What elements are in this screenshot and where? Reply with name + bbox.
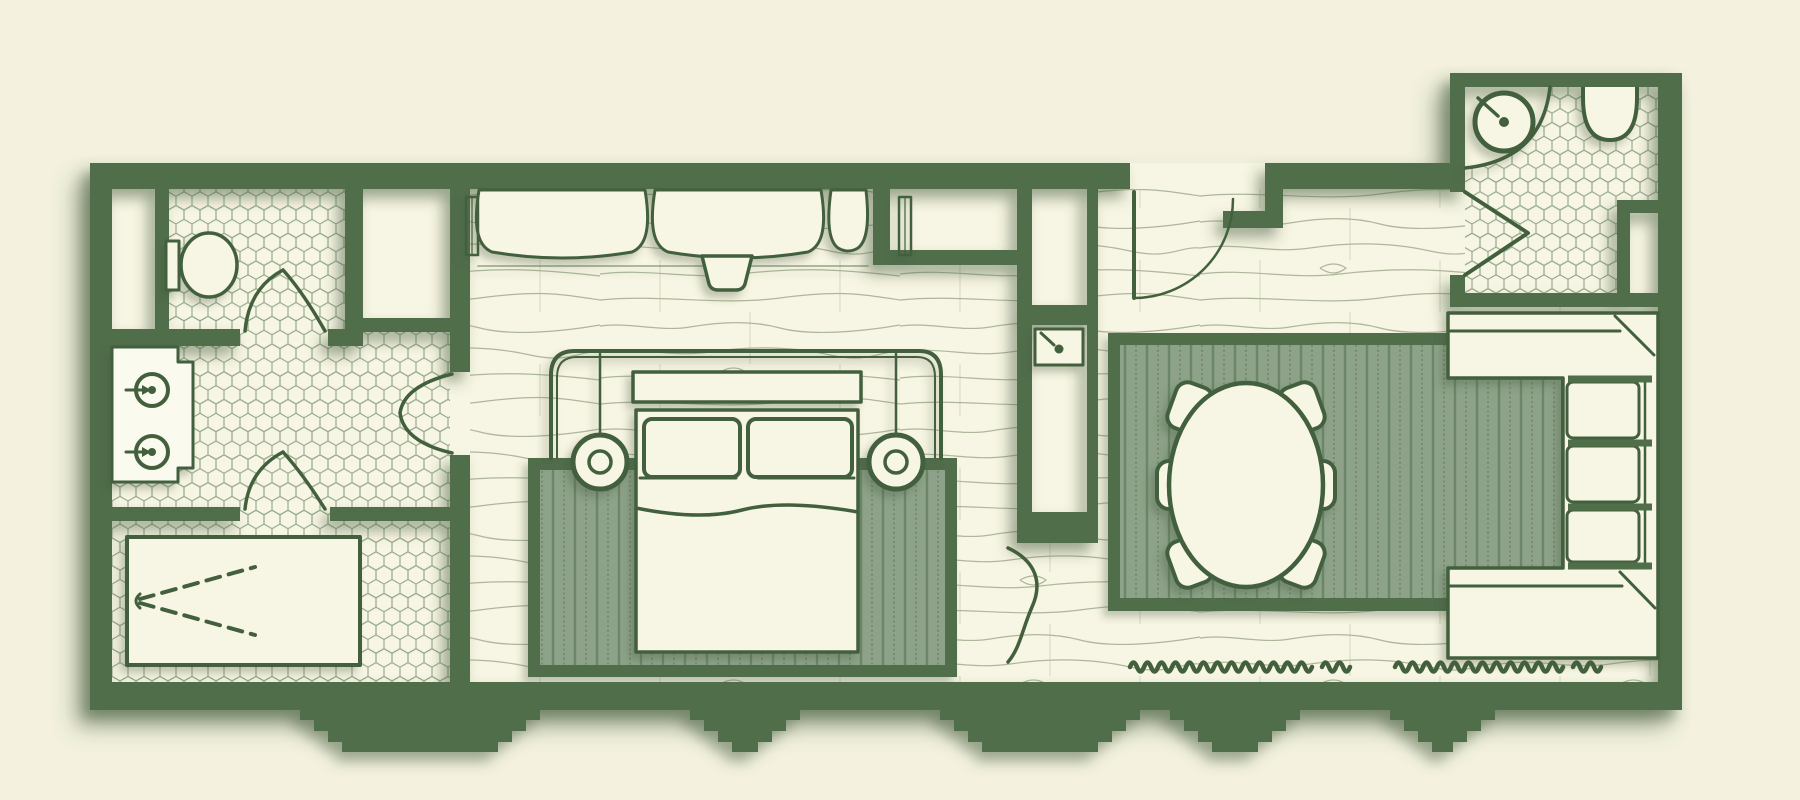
top-wall [90, 163, 1130, 189]
toilet-room-right-wall [345, 189, 363, 329]
pillow [644, 419, 740, 477]
guest-niche-wall-v [1617, 200, 1630, 293]
curtain-panel [652, 190, 823, 258]
right-wall [1658, 73, 1682, 710]
pillow [748, 419, 852, 477]
wardrobe-divider-wall [873, 189, 890, 252]
floor-plan-canvas [0, 0, 1800, 800]
guest-niche-wall-h [1617, 200, 1658, 213]
oval-dining-table [1169, 383, 1323, 587]
radiator-squiggle [1130, 663, 1312, 672]
service-left-wall [1017, 189, 1032, 543]
guest-toilet-icon [1583, 87, 1637, 140]
bath-bedroom-divider-bottom [450, 455, 470, 682]
service-upper-niche [1032, 189, 1087, 305]
guest-bath-left-wall-b [1450, 275, 1465, 293]
bar-sink-drain-icon [1055, 345, 1064, 354]
closet-b-bottom-wall [363, 318, 450, 332]
guest-bath-top-wall [1450, 73, 1682, 87]
left-wall [90, 163, 112, 710]
dining-set [1157, 379, 1335, 591]
toilet-room-band-right [328, 329, 363, 346]
shower-band-left [112, 507, 240, 521]
bath-bedroom-divider-top [450, 163, 470, 372]
headboard [633, 372, 861, 402]
service-cap-wall [1017, 512, 1098, 543]
floor-plan-page [0, 0, 1800, 800]
toilet-room-band-left [112, 329, 240, 346]
corner-sink-drain-icon [1499, 117, 1509, 127]
curtain-tieback-tray [702, 256, 752, 290]
guest-bath-bottom-wall [1450, 293, 1658, 307]
guest-bath-storage-niche [1630, 213, 1658, 293]
service-lower-niche [1032, 365, 1087, 512]
bottom-wall [90, 682, 1682, 710]
toilet-tank-icon [166, 241, 179, 290]
service-divider-wall [1032, 305, 1087, 325]
vanity-counter [112, 347, 193, 482]
service-right-wall [1087, 189, 1098, 543]
closet-a [112, 189, 155, 329]
top-wall-right [1277, 163, 1465, 189]
closet-b [363, 189, 450, 318]
wet-bar [1035, 329, 1083, 365]
shower-band-right [330, 507, 450, 521]
curtain-panel [829, 190, 868, 251]
guest-bath-left-wall-a [1450, 87, 1465, 192]
curtain-panel [476, 190, 647, 258]
toilet-bowl-icon [181, 233, 237, 297]
wardrobe-bottom-wall [873, 250, 1017, 265]
shower-enclosure [127, 537, 360, 665]
